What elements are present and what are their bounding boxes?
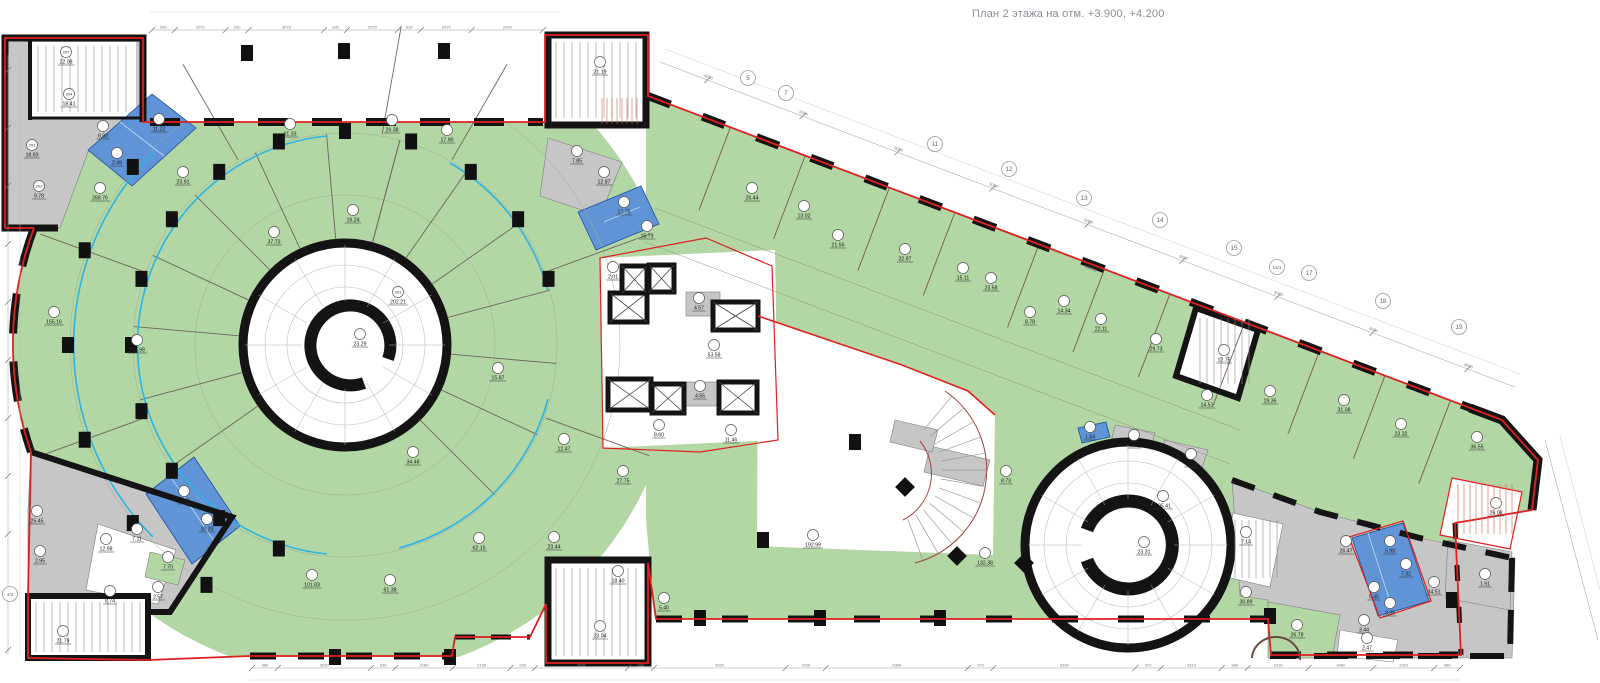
svg-text:7: 7 [784,90,788,97]
svg-text:37.73: 37.73 [268,240,281,246]
svg-text:202.21: 202.21 [390,300,406,306]
svg-text:13.02: 13.02 [798,214,811,220]
svg-text:207: 207 [63,50,70,55]
svg-text:26.08: 26.08 [1490,511,1503,517]
svg-text:2.89: 2.89 [1129,443,1139,449]
svg-text:15/1: 15/1 [1273,265,1282,270]
svg-text:27.75: 27.75 [617,479,630,485]
svg-text:11: 11 [932,141,939,148]
svg-text:1.91: 1.91 [1480,582,1490,588]
svg-text:5390: 5390 [892,663,902,668]
grid-bubble: 18 [1376,294,1391,309]
svg-text:12.98: 12.98 [100,547,113,553]
svg-text:22.08: 22.08 [60,60,73,66]
svg-text:2070: 2070 [368,25,378,30]
svg-text:14: 14 [1156,217,1164,224]
svg-text:202: 202 [36,184,43,189]
svg-text:53.58: 53.58 [708,353,721,359]
svg-text:23.58: 23.58 [985,286,998,292]
svg-text:22.11: 22.11 [1095,327,1108,333]
svg-text:10.33: 10.33 [201,527,214,533]
elevator-shaft [652,384,684,413]
svg-text:5390: 5390 [1060,663,1070,668]
svg-text:23.32: 23.32 [1395,432,1408,438]
svg-text:930: 930 [519,663,526,668]
svg-text:26.47: 26.47 [1340,549,1353,555]
svg-text:8.78: 8.78 [1025,320,1035,326]
svg-text:26.44: 26.44 [746,196,759,202]
svg-text:9.78: 9.78 [34,194,44,200]
grid-bubble: 13 [1077,191,1092,206]
svg-text:23.04: 23.04 [594,634,607,640]
elevator-shaft [608,379,651,410]
svg-text:13: 13 [1080,195,1088,202]
svg-text:5.45: 5.45 [1369,595,1379,601]
svg-text:2.95: 2.95 [35,559,45,565]
svg-text:61.33: 61.33 [284,132,297,138]
svg-text:17.90: 17.90 [441,138,454,144]
floor-plan-sheet: 9302070930307093020709302070290098035309… [0,0,1600,683]
stair-bottom-left-floor [30,597,148,659]
grid-bubble: 5 [741,71,756,86]
svg-text:192.99: 192.99 [805,543,821,549]
svg-text:2070: 2070 [442,25,452,30]
svg-text:9.97: 9.97 [179,499,189,505]
svg-text:23.31: 23.31 [1138,550,1151,556]
svg-text:8.73: 8.73 [1001,479,1011,485]
svg-text:2180: 2180 [420,663,430,668]
svg-text:2190: 2190 [477,663,487,668]
svg-text:34.48: 34.48 [407,460,420,466]
stair-bottom-mid-floor [548,560,648,663]
svg-text:4.57: 4.57 [694,306,704,312]
svg-text:15.87: 15.87 [492,376,505,382]
svg-text:2.47: 2.47 [1362,646,1372,652]
svg-text:18: 18 [1379,298,1387,305]
svg-text:2310: 2310 [1399,663,1409,668]
svg-text:31.08: 31.08 [1338,408,1351,414]
grid-bubble: 11 [928,137,943,152]
elevator-shaft [622,266,647,293]
svg-text:17.75: 17.75 [618,210,631,216]
svg-text:970: 970 [977,663,984,668]
svg-text:19: 19 [1455,324,1463,331]
svg-text:5.40: 5.40 [659,606,669,612]
svg-text:61.38: 61.38 [384,588,397,594]
svg-text:930: 930 [332,25,339,30]
svg-text:2310: 2310 [1187,663,1197,668]
svg-text:23.29: 23.29 [354,342,367,348]
svg-text:6000: 6000 [989,181,1000,189]
svg-text:1.84: 1.84 [1085,435,1095,441]
svg-text:7.70: 7.70 [163,565,173,571]
svg-text:14.34: 14.34 [1058,309,1071,315]
svg-text:2.05: 2.05 [1186,462,1196,468]
svg-text:930: 930 [234,25,241,30]
svg-text:19.36: 19.36 [1264,399,1277,405]
svg-text:62.15: 62.15 [473,546,486,552]
svg-text:930: 930 [160,25,167,30]
svg-text:980: 980 [1444,663,1451,668]
svg-text:6000: 6000 [1179,253,1190,261]
elevator-shaft [713,302,758,330]
svg-text:8.60: 8.60 [654,433,664,439]
stair-top-mid-floor [548,35,646,125]
svg-text:132.38: 132.38 [977,561,993,567]
grid-bubble: 17 [1302,266,1317,281]
svg-text:18.83: 18.83 [26,153,39,159]
svg-text:34.51: 34.51 [1428,590,1441,596]
svg-text:5000: 5000 [715,663,725,668]
grid-bubble: 12 [1002,162,1017,177]
svg-text:101.83: 101.83 [304,583,320,589]
grid-bubble: 15 [1227,241,1242,256]
svg-text:970: 970 [1145,663,1152,668]
svg-text:2900: 2900 [503,25,513,30]
svg-text:30.89: 30.89 [1240,600,1253,606]
svg-text:6000: 6000 [1369,326,1380,334]
svg-text:11.22: 11.22 [153,127,166,133]
grid-bubble: 14 [1153,213,1168,228]
svg-text:2.49: 2.49 [112,161,122,167]
svg-text:4/3: 4/3 [7,592,14,597]
svg-text:6000: 6000 [1274,290,1285,298]
svg-text:6000: 6000 [704,73,715,81]
svg-text:23.91: 23.91 [177,180,190,186]
svg-text:205.41: 205.41 [1155,504,1171,510]
svg-text:980: 980 [1231,663,1238,668]
svg-text:5.99: 5.99 [1385,549,1395,555]
svg-text:12: 12 [1005,166,1013,173]
svg-text:201: 201 [395,290,402,295]
svg-text:7.32: 7.32 [1401,572,1411,578]
elevator-shaft [649,265,674,292]
svg-text:25.45: 25.45 [31,519,44,525]
svg-text:16.24: 16.24 [347,218,360,224]
svg-text:14.51: 14.51 [1201,403,1214,409]
svg-text:1530: 1530 [801,663,811,668]
svg-text:21.79: 21.79 [57,639,70,645]
svg-text:980: 980 [638,663,645,668]
svg-text:29.38: 29.38 [386,128,399,134]
svg-text:6000: 6000 [799,109,810,117]
svg-text:36.55: 36.55 [1471,445,1484,451]
svg-text:155.16: 155.16 [46,320,62,326]
svg-text:26.78: 26.78 [1291,633,1304,639]
drawing-title: План 2 этажа на отм. +3.900, +4.200 [972,8,1165,20]
svg-text:2.01: 2.01 [608,275,618,281]
svg-text:21.19: 21.19 [594,70,607,76]
svg-text:8.93: 8.93 [98,134,108,140]
svg-text:15.11: 15.11 [957,276,970,282]
svg-text:7.11: 7.11 [132,537,142,543]
svg-text:204: 204 [66,92,73,97]
svg-text:32.87: 32.87 [899,257,912,263]
svg-text:203: 203 [29,143,36,148]
svg-text:12.75: 12.75 [1218,358,1231,364]
svg-text:4.55: 4.55 [695,394,705,400]
svg-text:7.14: 7.14 [1241,540,1251,546]
grid-bubble: 4/3 [3,587,18,602]
svg-text:930: 930 [380,663,387,668]
stair-top-left-floor [32,42,136,118]
svg-text:2.57: 2.57 [153,595,163,601]
elevator-shaft [610,293,647,322]
svg-text:18.40: 18.40 [612,579,625,585]
floor-plan-drawing: 9302070930307093020709302070290098035309… [0,0,1600,683]
svg-text:2460: 2460 [1336,663,1346,668]
svg-text:980: 980 [262,663,269,668]
svg-text:23.44: 23.44 [548,545,561,551]
svg-text:7.85: 7.85 [572,159,582,165]
elevator-shaft [719,382,757,413]
svg-text:21.56: 21.56 [832,243,845,249]
svg-text:2070: 2070 [196,25,206,30]
svg-text:29.73: 29.73 [1150,347,1163,353]
svg-text:11.46: 11.46 [725,438,738,444]
svg-text:18.41: 18.41 [63,102,76,108]
svg-text:6000: 6000 [1084,217,1095,225]
grid-bubble: 19 [1452,320,1467,335]
svg-text:3530: 3530 [320,663,330,668]
svg-text:268.76: 268.76 [92,196,108,202]
svg-text:3530: 3530 [577,663,587,668]
svg-text:2310: 2310 [1274,663,1284,668]
svg-text:12.47: 12.47 [558,447,571,453]
svg-text:15: 15 [1230,245,1238,252]
grid-bubble: 7 [779,86,794,101]
svg-text:3070: 3070 [282,25,292,30]
svg-text:6000: 6000 [894,145,905,153]
svg-text:8.74: 8.74 [105,599,115,605]
svg-text:3.35: 3.35 [1385,611,1395,617]
grid-bubble: 15/1 [1270,260,1285,275]
svg-text:5: 5 [746,75,750,82]
svg-text:930: 930 [406,25,413,30]
svg-text:12.87: 12.87 [598,180,611,186]
svg-text:105.98: 105.98 [129,348,145,354]
svg-text:17: 17 [1305,270,1313,277]
svg-text:6000: 6000 [1464,362,1475,370]
svg-text:15.79: 15.79 [641,234,654,240]
